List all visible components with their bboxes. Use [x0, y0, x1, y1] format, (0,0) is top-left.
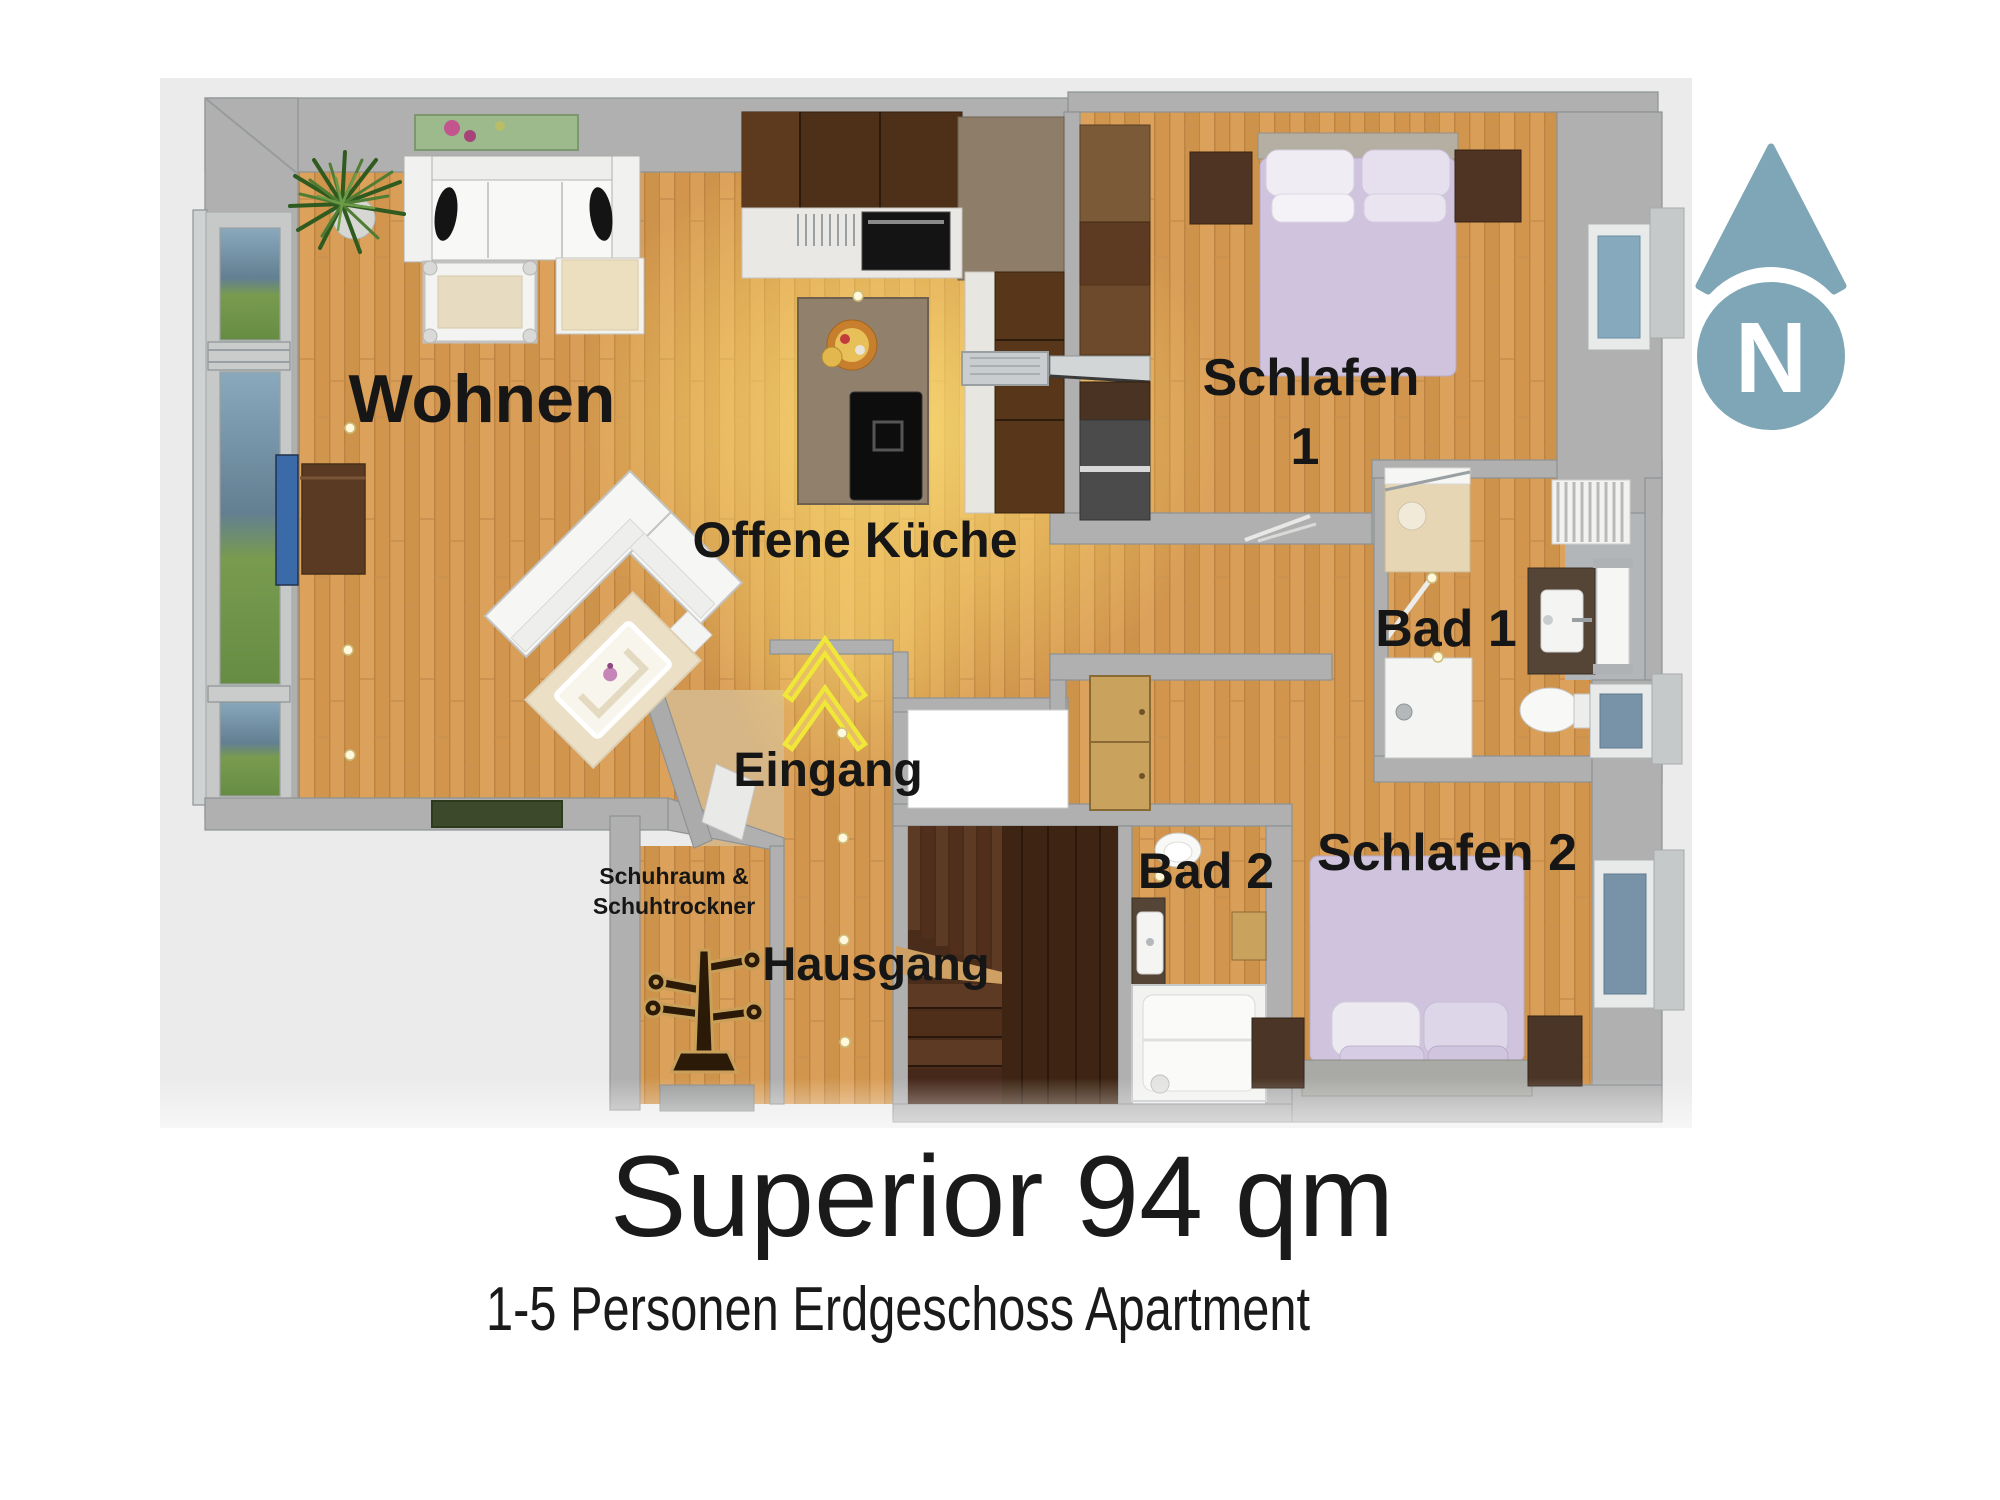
svg-text:Schuhraum &: Schuhraum & — [599, 863, 749, 889]
svg-text:Schuhtrockner: Schuhtrockner — [593, 893, 755, 919]
svg-text:Bad 1: Bad 1 — [1375, 600, 1517, 658]
svg-text:Eingang: Eingang — [733, 744, 922, 797]
svg-text:Offene Küche: Offene Küche — [692, 512, 1017, 568]
svg-text:N: N — [1735, 302, 1807, 414]
svg-text:Schlafen 2: Schlafen 2 — [1317, 824, 1577, 882]
svg-text:1: 1 — [1291, 418, 1320, 476]
svg-text:Hausgang: Hausgang — [762, 937, 989, 990]
svg-text:Bad 2: Bad 2 — [1138, 843, 1274, 899]
svg-text:Superior 94 qm: Superior 94 qm — [610, 1133, 1394, 1261]
svg-text:Wohnen: Wohnen — [349, 361, 616, 437]
svg-text:1-5 Personen Erdgeschoss Apart: 1-5 Personen Erdgeschoss Apartment — [486, 1275, 1310, 1344]
svg-text:Schlafen: Schlafen — [1203, 349, 1420, 407]
